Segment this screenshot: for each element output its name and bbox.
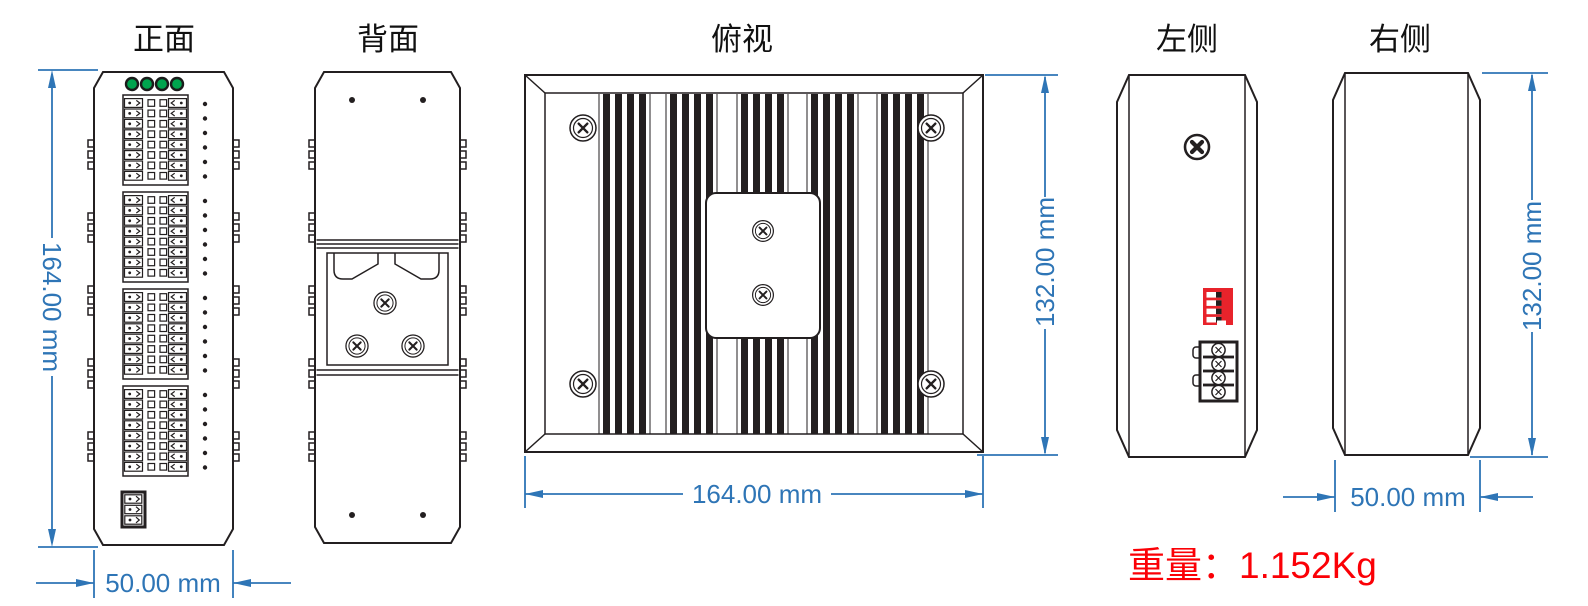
dip-switch: [1203, 288, 1233, 325]
top-view-title: 俯视: [711, 22, 773, 57]
phillips-screw-icon: [346, 335, 368, 357]
led-indicator-icon: [141, 78, 153, 90]
weight-label: 重量：1.152Kg: [1128, 545, 1377, 586]
phillips-screw-icon: [918, 115, 944, 141]
terminal-connector-4pin: [1193, 342, 1237, 401]
back-view-title: 背面: [357, 22, 419, 57]
led-indicator-icon: [126, 78, 138, 90]
power-connector-3pin: [122, 492, 145, 527]
phillips-screw-icon: [570, 115, 596, 141]
left-view: 左侧: [1117, 22, 1257, 457]
technical-drawing-canvas: 正面: [0, 0, 1588, 606]
phillips-screw-icon: [753, 221, 774, 242]
mounting-hole-dot: [420, 512, 426, 518]
mounting-hole-dot: [349, 512, 355, 518]
right-view-title: 右侧: [1369, 22, 1431, 57]
mounting-hole-dot: [349, 97, 355, 103]
right-body-outline: [1333, 73, 1480, 455]
left-view-title: 左侧: [1156, 22, 1218, 57]
phillips-screw-icon: [570, 371, 596, 397]
right-width-label: 50.00 mm: [1350, 482, 1466, 512]
front-width-label: 50.00 mm: [105, 568, 221, 598]
back-view: 背面: [309, 22, 466, 543]
front-view-title: 正面: [133, 22, 195, 57]
phillips-screw-icon: [374, 292, 396, 314]
right-depth-label: 132.00 mm: [1517, 201, 1547, 331]
case-screw-icon: [1185, 135, 1209, 159]
led-indicator-icon: [156, 78, 168, 90]
phillips-screw-icon: [918, 371, 944, 397]
center-nameplate: [706, 193, 820, 338]
front-height-label: 164.00 mm: [37, 242, 67, 372]
phillips-screw-icon: [753, 285, 774, 306]
top-depth-label: 132.00 mm: [1030, 197, 1060, 327]
top-width-label: 164.00 mm: [692, 479, 822, 509]
mounting-hole-dot: [420, 97, 426, 103]
phillips-screw-icon: [402, 335, 424, 357]
top-view: 俯视 16: [525, 22, 1060, 509]
led-indicator-icon: [171, 78, 183, 90]
